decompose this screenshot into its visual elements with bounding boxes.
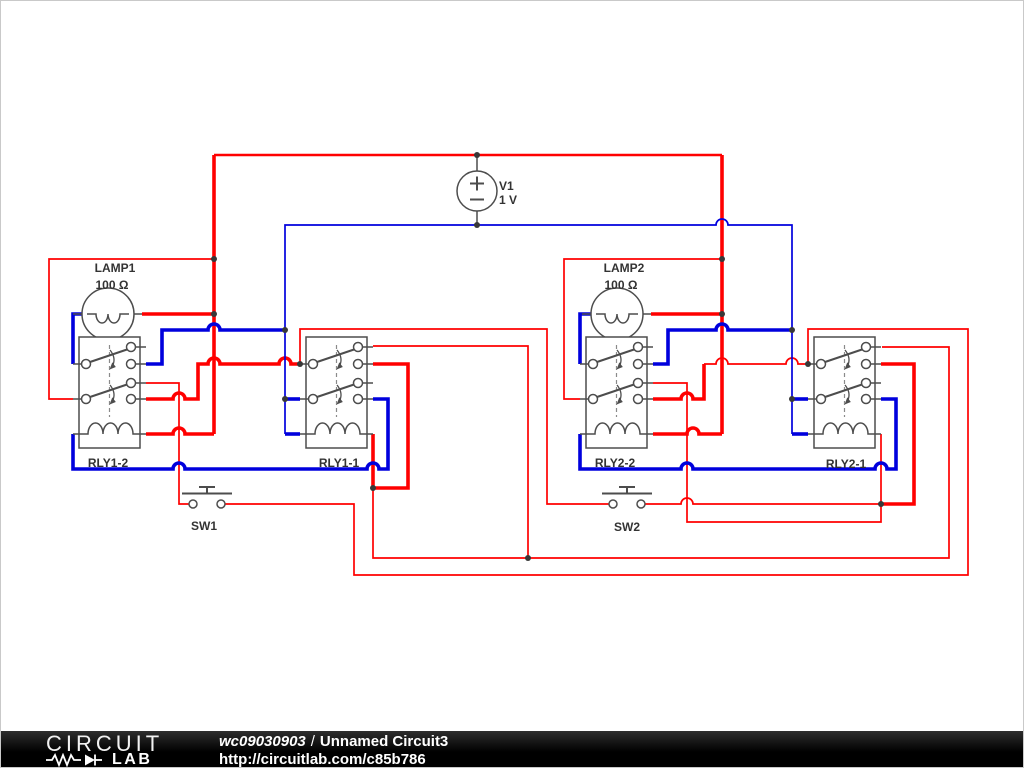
schematic-canvas: V1 1 V LAMP1 100 Ω LAMP2 100 Ω RLY1-2 RL… (1, 1, 1024, 731)
circuitlab-logo: CIRCUIT LAB (46, 734, 177, 767)
logo-text-lab: LAB (112, 753, 152, 767)
voltage-source-v1 (457, 155, 497, 225)
separator: / (311, 733, 315, 750)
rly2-2-label: RLY2-2 (595, 456, 636, 470)
circuit-title: Unnamed Circuit3 (320, 733, 448, 750)
relay-rly1-2 (73, 337, 146, 448)
resistor-diode-icon (46, 753, 112, 767)
sw1-label: SW1 (191, 519, 217, 533)
lamp1-symbol (73, 288, 142, 340)
rly2-1-label: RLY2-1 (826, 457, 867, 471)
sw2-label: SW2 (614, 520, 640, 534)
lamp2-value-label: 100 Ω (605, 278, 638, 292)
switch-sw2 (602, 487, 652, 508)
lamp2-symbol (582, 288, 651, 340)
v1-name-label: V1 (499, 179, 514, 193)
lamp2-name-label: LAMP2 (604, 261, 645, 275)
relay-rly2-1 (808, 337, 881, 448)
relay-rly2-2 (580, 337, 653, 448)
circuit-url: http://circuitlab.com/c85b786 (219, 751, 448, 768)
workspace-id: wc09030903 (219, 733, 306, 750)
switch-sw1 (182, 487, 232, 508)
lamp1-value-label: 100 Ω (96, 278, 129, 292)
relay-rly1-1 (300, 337, 373, 448)
v1-value-label: 1 V (499, 193, 517, 207)
footer-meta: wc09030903/Unnamed Circuit3 http://circu… (219, 733, 448, 768)
rly1-1-label: RLY1-1 (319, 456, 360, 470)
circuitlab-export-page: V1 1 V LAMP1 100 Ω LAMP2 100 Ω RLY1-2 RL… (0, 0, 1024, 768)
blue-wires (73, 219, 896, 469)
rly1-2-label: RLY1-2 (88, 456, 129, 470)
footer-bar: CIRCUIT LAB wc09030903/Unnamed Circuit3 … (1, 731, 1024, 768)
lamp1-name-label: LAMP1 (95, 261, 136, 275)
